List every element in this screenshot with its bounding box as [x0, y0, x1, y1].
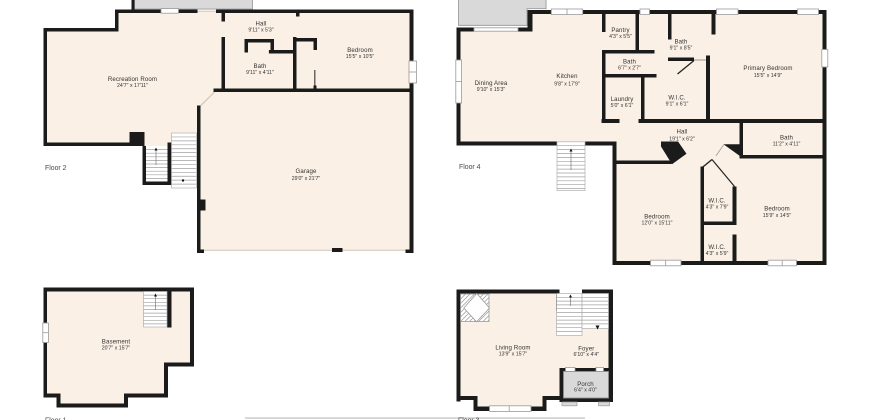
svg-text:29'0" x 21'7": 29'0" x 21'7" — [292, 176, 321, 182]
svg-text:9'8" x 17'9": 9'8" x 17'9" — [554, 81, 580, 87]
svg-text:Bedroom: Bedroom — [764, 206, 790, 213]
svg-text:Hall: Hall — [256, 21, 267, 28]
svg-text:Dining Area: Dining Area — [475, 80, 508, 87]
svg-text:Garage: Garage — [295, 168, 317, 175]
svg-text:9'11" x 4'11": 9'11" x 4'11" — [246, 70, 274, 76]
svg-text:5'0" x 6'1": 5'0" x 6'1" — [611, 103, 634, 109]
svg-text:4'3" x 5'5": 4'3" x 5'5" — [609, 34, 632, 40]
svg-text:6'4" x 4'0": 6'4" x 4'0" — [574, 388, 597, 394]
svg-text:Living Room: Living Room — [495, 344, 530, 351]
svg-text:12'0" x 15'11": 12'0" x 15'11" — [642, 221, 673, 227]
svg-text:9'1" x 6'1": 9'1" x 6'1" — [666, 101, 689, 107]
svg-text:4'3" x 7'9": 4'3" x 7'9" — [706, 204, 729, 210]
svg-text:Floor 2: Floor 2 — [45, 165, 67, 172]
svg-text:11'2" x 4'11": 11'2" x 4'11" — [773, 141, 801, 147]
svg-text:6'7" x 2'7": 6'7" x 2'7" — [618, 65, 641, 71]
svg-text:Bedroom: Bedroom — [644, 213, 670, 220]
svg-text:W.I.C.: W.I.C. — [708, 197, 725, 204]
svg-text:Bath: Bath — [780, 134, 793, 141]
svg-text:15'5" x 10'5": 15'5" x 10'5" — [346, 54, 375, 60]
svg-text:Recreation Room: Recreation Room — [108, 76, 157, 83]
svg-text:9'11" x 5'3": 9'11" x 5'3" — [248, 28, 273, 34]
svg-text:Kitchen: Kitchen — [556, 73, 577, 80]
svg-text:Hall: Hall — [677, 128, 688, 135]
svg-text:19'1" x 6'2": 19'1" x 6'2" — [669, 136, 695, 142]
svg-text:W.I.C.: W.I.C. — [668, 94, 685, 101]
svg-text:15'5" x 14'9": 15'5" x 14'9" — [754, 73, 783, 79]
svg-text:13'9" x 15'7": 13'9" x 15'7" — [499, 351, 528, 357]
svg-text:4'3" x 5'9": 4'3" x 5'9" — [706, 251, 729, 257]
svg-text:Bath: Bath — [674, 38, 687, 45]
svg-text:24'7" x 17'11": 24'7" x 17'11" — [117, 83, 148, 89]
svg-text:15'9" x 14'5": 15'9" x 14'5" — [763, 213, 792, 219]
svg-text:20'7" x 15'7": 20'7" x 15'7" — [102, 345, 131, 351]
svg-text:9'10" x 15'3": 9'10" x 15'3" — [477, 87, 506, 93]
svg-text:Pantry: Pantry — [611, 27, 630, 34]
svg-text:Floor 4: Floor 4 — [459, 164, 481, 171]
svg-text:9'1" x 8'5": 9'1" x 8'5" — [670, 46, 693, 52]
svg-text:Bedroom: Bedroom — [347, 47, 373, 54]
svg-text:6'10" x 4'4": 6'10" x 4'4" — [574, 352, 600, 358]
svg-text:Primary Bedroom: Primary Bedroom — [743, 65, 792, 72]
svg-text:Laundry: Laundry — [611, 96, 635, 103]
svg-text:Bath: Bath — [253, 63, 266, 70]
